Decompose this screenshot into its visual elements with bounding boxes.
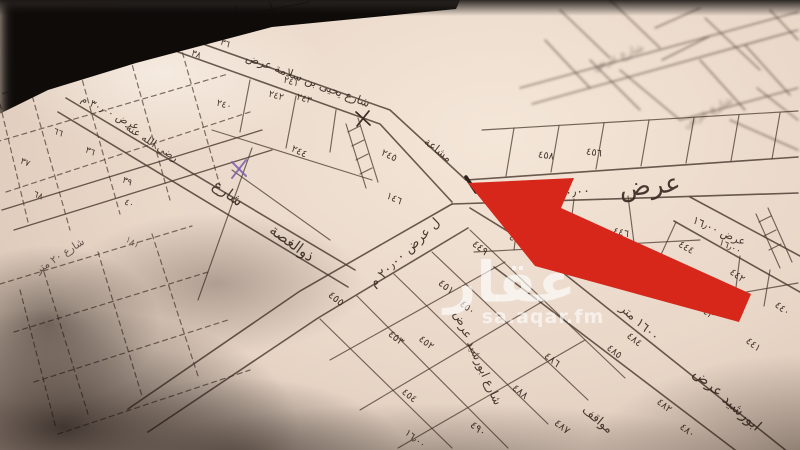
red-arrow-annotation	[0, 0, 800, 450]
red-arrow-shape	[468, 178, 751, 322]
photo-of-plot-map: شارع يحيى بن سلامة عرض شارع ذوالغصة رضي …	[0, 0, 800, 450]
